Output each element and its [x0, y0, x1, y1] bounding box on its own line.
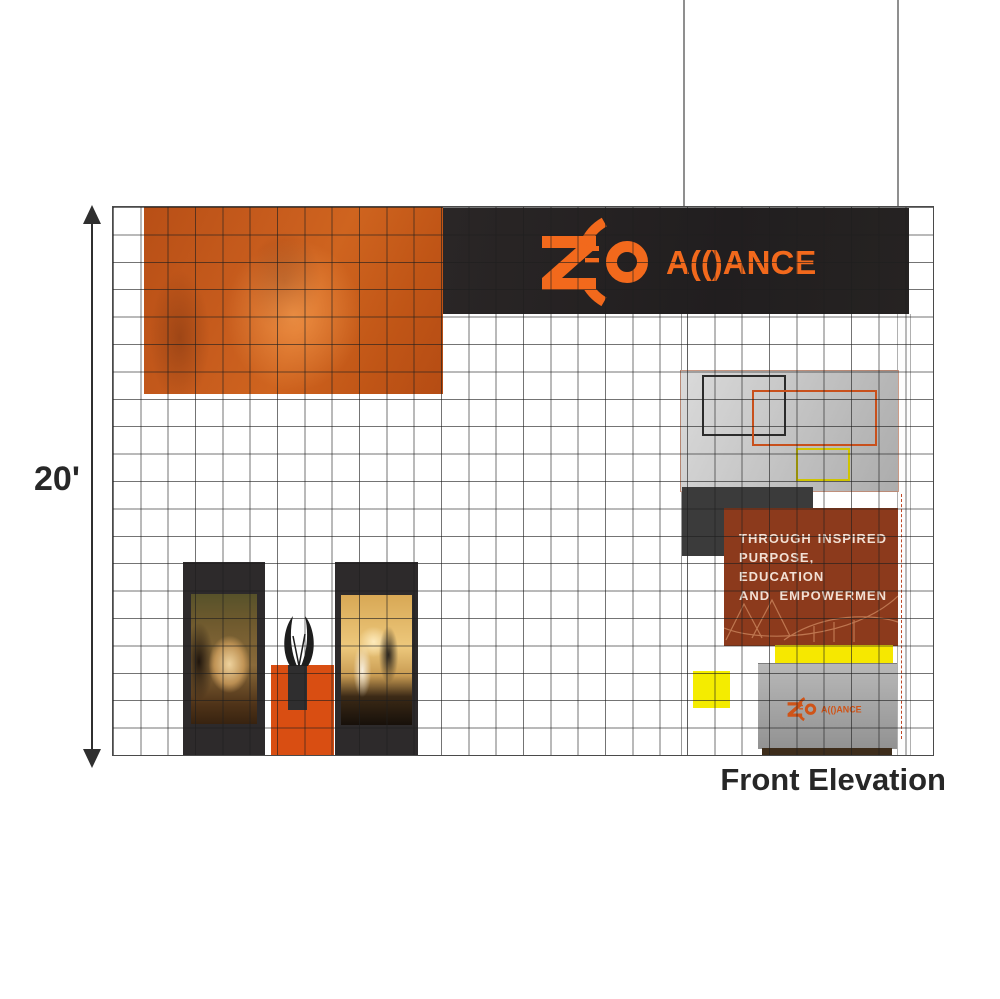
logo-o-ring — [612, 247, 643, 278]
view-title: Front Elevation — [720, 762, 946, 798]
hanging-cable-right — [897, 0, 899, 208]
orange-podium — [271, 665, 334, 755]
orange-photo-panel — [144, 207, 443, 394]
podium-slot — [288, 665, 307, 710]
counter-base-strip — [762, 748, 892, 755]
booth-grid-structure: A(()ANCE THROUGH INSPIRED PURPOSE, EDUCA… — [112, 206, 934, 756]
outline-rectangle-yellow — [796, 448, 850, 481]
dimension-arrowhead-bottom — [83, 749, 101, 768]
yellow-accent-strip — [775, 645, 893, 664]
message-line-1: THROUGH INSPIRED — [739, 529, 887, 548]
dimension-arrowhead-top — [83, 205, 101, 224]
curved-sculpture — [278, 614, 320, 666]
photo-tower-left — [183, 562, 265, 755]
zeo-alliance-logo: A(()ANCE — [538, 213, 838, 313]
counter-logo-wordmark: A(()ANCE — [821, 704, 862, 714]
counter-logo: A(()ANCE — [786, 696, 868, 723]
dimension-arrow-line — [91, 222, 93, 751]
message-panel: THROUGH INSPIRED PURPOSE, EDUCATION AND … — [724, 508, 898, 646]
frame-marker-line — [901, 494, 902, 739]
logo-wordmark: A(()ANCE — [666, 244, 816, 281]
bridge-graphic — [724, 578, 898, 646]
yellow-accent-square — [693, 671, 730, 708]
wedding-photo — [341, 595, 412, 725]
hanging-cable-left — [683, 0, 685, 208]
family-photo — [191, 594, 257, 724]
photo-tower-right — [335, 562, 418, 755]
gray-art-panel — [680, 370, 899, 492]
structure-frame-right-edge — [897, 314, 911, 755]
outline-rectangle-orange — [752, 390, 877, 446]
dimension-label: 20' — [34, 460, 80, 499]
reception-counter: A(()ANCE — [758, 663, 897, 749]
elevation-drawing: 20' A(()ANCE — [0, 0, 1000, 999]
header-banner: A(()ANCE — [443, 208, 909, 314]
